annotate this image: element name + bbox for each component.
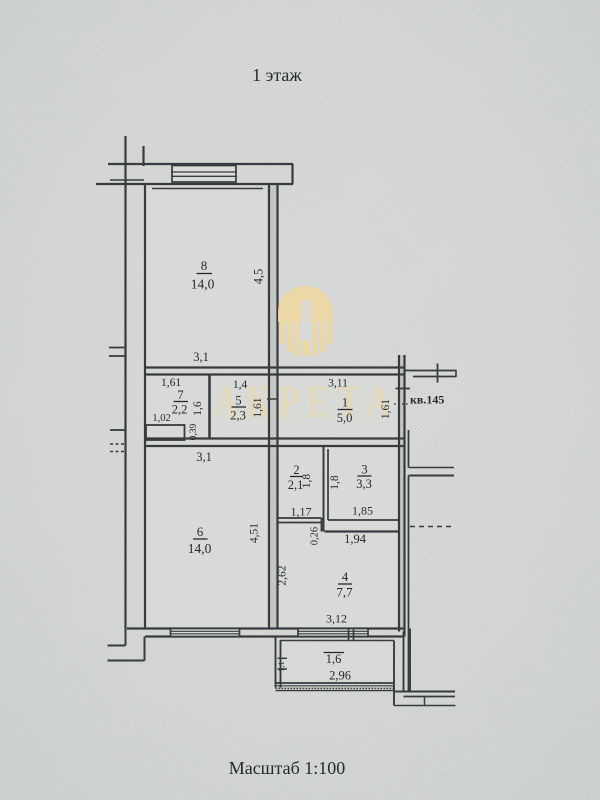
svg-text:3,1: 3,1 [193, 350, 209, 364]
svg-text:2,96: 2,96 [329, 669, 351, 683]
svg-text:4,5: 4,5 [252, 269, 266, 285]
svg-text:Масштаб 1:100: Масштаб 1:100 [229, 758, 346, 778]
svg-text:14,0: 14,0 [191, 277, 215, 292]
svg-text:1,4: 1,4 [233, 379, 248, 391]
svg-text:0,39: 0,39 [189, 423, 199, 440]
svg-text:1,85: 1,85 [352, 504, 373, 518]
svg-text:7,7: 7,7 [336, 585, 353, 600]
svg-text:0,26: 0,26 [310, 527, 321, 545]
svg-text:5,0: 5,0 [337, 411, 353, 425]
svg-text:2: 2 [293, 463, 299, 477]
svg-text:1,61: 1,61 [380, 399, 392, 419]
svg-text:7: 7 [177, 388, 183, 402]
svg-text:1,1: 1,1 [276, 661, 286, 672]
svg-text:3,1: 3,1 [196, 450, 212, 464]
svg-text:1,94: 1,94 [344, 532, 367, 546]
svg-text:14,0: 14,0 [188, 541, 212, 556]
svg-text:1,6: 1,6 [192, 401, 204, 416]
svg-text:1,8: 1,8 [301, 474, 313, 489]
svg-text:5: 5 [235, 394, 241, 408]
svg-text:1,02: 1,02 [152, 413, 170, 424]
svg-text:8: 8 [201, 258, 208, 273]
svg-text:3,11: 3,11 [328, 378, 348, 390]
svg-text:1 этаж: 1 этаж [252, 65, 302, 85]
svg-text:6: 6 [197, 524, 204, 539]
svg-text:кв.145: кв.145 [410, 393, 444, 407]
svg-text:2,3: 2,3 [230, 409, 246, 423]
svg-text:1,61: 1,61 [252, 397, 264, 417]
svg-text:1,6: 1,6 [326, 652, 342, 666]
svg-text:2,2: 2,2 [172, 403, 188, 417]
svg-text:1: 1 [342, 396, 348, 410]
svg-text:3: 3 [361, 463, 367, 477]
svg-text:1,17: 1,17 [291, 505, 312, 519]
svg-text:4,51: 4,51 [249, 523, 261, 543]
svg-text:2,62: 2,62 [277, 565, 289, 585]
svg-text:1,8: 1,8 [329, 475, 341, 490]
svg-text:4: 4 [342, 569, 349, 584]
svg-text:3,3: 3,3 [356, 477, 372, 491]
svg-text:3,12: 3,12 [326, 612, 347, 626]
